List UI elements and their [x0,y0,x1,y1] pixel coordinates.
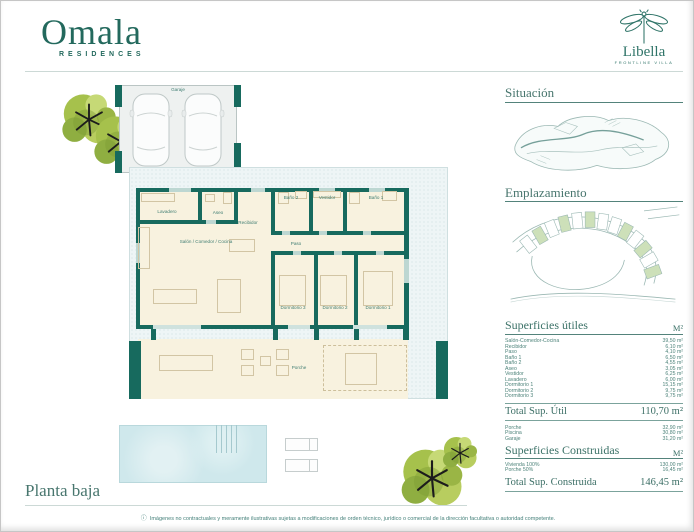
porch-pillar [129,341,141,399]
bed [320,275,347,306]
sliding-door [153,325,201,329]
porch-pillar [436,341,448,399]
furniture [229,239,255,252]
wall [354,255,358,329]
room-label: Salón / Comedor / Cocina [180,239,233,244]
pool-steps [221,425,222,453]
room-label: Aseo [213,210,223,215]
sliding-door [353,325,387,329]
furniture [382,191,397,201]
door-gap [319,231,327,235]
room-label: Lavadero [157,209,176,214]
wall [354,329,359,340]
furniture [205,194,215,202]
room-label: Paso [291,241,301,246]
divider [505,403,683,404]
superficies-construidas-title: Superficies Construidas [505,443,619,458]
pool-steps [236,425,237,453]
furniture [345,353,377,385]
brand-name: Omala [41,11,142,53]
door-gap [334,251,342,255]
emplazamiento-title: Emplazamiento [505,185,683,201]
wall [234,85,241,107]
room-label: Vestidor [319,195,336,200]
bed [279,275,306,306]
furniture [159,355,213,371]
room-label: Baño 2 [284,195,299,200]
window [404,259,409,283]
furniture [138,227,150,269]
total-util-row: Total Sup. Útil 110,70 m² [505,406,683,417]
porch-label: Porche [292,365,307,370]
unit-label: M² [673,448,683,458]
wall [136,220,238,224]
door-gap [206,220,216,224]
table-row: Porche 50%16,45 m² [505,468,683,474]
furniture [276,365,289,376]
superficies-construidas-header: Superficies Construidas M² [505,443,683,458]
wall [115,85,122,107]
furniture [153,289,197,304]
wall [314,255,318,329]
total-construida-row: Total Sup. Construida 146,45 m² [505,477,683,488]
furniture [141,193,175,202]
superficies-utiles-header: Superficies útiles M² [505,318,683,333]
furniture [349,192,360,204]
emplazamiento-map [505,205,683,307]
sun-lounger [285,438,318,451]
wall [343,188,347,235]
wall [271,251,275,329]
product-name: Libella [601,44,687,61]
sun-lounger [285,459,318,472]
table-row: Garaje31,20 m² [505,437,683,443]
wall [271,188,275,235]
window [169,188,191,192]
door-gap [363,231,371,235]
divider [505,102,683,103]
door-gap [282,231,290,235]
divider [505,334,683,335]
pool-steps [226,425,227,453]
divider [25,505,467,506]
door-gap [293,251,301,255]
room-label: Dormitorio 1 [365,305,390,310]
cars-top-view-icon [119,85,237,173]
room-label: Dormitorio 3 [280,305,305,310]
door-gap [376,251,384,255]
wall [198,192,202,222]
wall [115,151,122,173]
furniture [223,192,232,204]
header-divider [25,71,683,72]
table-row: Dormitorio 39,75 m² [505,394,683,400]
wall [271,231,409,235]
room-label: Recibidor [238,220,257,225]
divider [505,491,683,492]
wall [273,329,278,340]
brochure-page: Omala RESIDENCES Libella FRONTLINE VILLA… [0,0,694,532]
footer-disclaimer: ⓘImágenes no contractuales y meramente i… [1,513,694,522]
furniture [241,365,254,376]
room-label: Dormitorio 2 [322,305,347,310]
bed [363,271,393,306]
superficies-utiles-title: Superficies útiles [505,318,588,333]
situacion-title: Situación [505,85,683,101]
wall [403,329,409,340]
divider [505,420,683,421]
wall [314,329,319,340]
info-icon: ⓘ [141,516,147,522]
divider [505,201,683,202]
furniture [217,279,241,313]
pool [119,425,267,483]
sliding-door [288,325,310,329]
room-label: Baño 1 [369,195,384,200]
brand-tagline: RESIDENCES [59,51,145,58]
unit-label: M² [673,323,683,333]
situacion-map [505,105,683,179]
pool-steps [216,425,217,453]
tree-icon [437,431,483,477]
furniture [260,356,271,366]
page-title: Planta baja [25,481,100,501]
window [251,188,265,192]
wall [151,329,156,340]
dragonfly-icon [615,7,673,47]
wall [234,188,238,222]
product-tagline: FRONTLINE VILLA [601,60,687,65]
pool-steps [231,425,232,453]
furniture [276,349,289,360]
divider [505,458,683,459]
furniture [241,349,254,360]
